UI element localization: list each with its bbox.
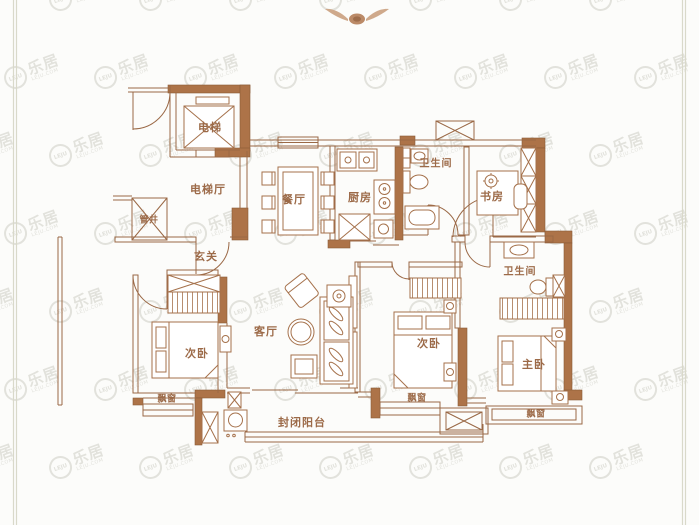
balcony-laundry-icon [202,392,247,443]
compass-icon [325,9,389,25]
room-label-kitchen: 厨房 [348,189,372,205]
bedroom-left-furniture-icon [152,275,231,378]
room-label-study: 书房 [480,188,504,204]
room-label-bay-window-middle: 飘窗 [407,391,426,404]
room-label-bay-window-right: 飘窗 [526,407,545,420]
room-label-bedroom-left: 次卧 [185,345,209,361]
page-border-lines [14,0,686,525]
floor-plan-drawing [0,0,699,525]
bedroom-middle-furniture-icon [394,278,461,388]
room-label-bathroom-2: 卫生间 [504,263,537,278]
room-label-elevator-hall: 电梯厅 [190,181,226,197]
room-label-elevator: 电梯 [198,119,222,135]
master-bedroom-furniture-icon [498,298,568,404]
room-label-bathroom-1: 卫生间 [420,155,453,170]
room-label-living: 客厅 [254,323,278,339]
room-label-entrance: 玄关 [194,248,218,264]
living-room-furniture-icon [284,273,357,388]
room-label-pipe-shaft: 管井 [139,213,158,226]
room-label-balcony: 封闭阳台 [278,414,326,430]
room-label-bay-window-left: 飘窗 [157,392,176,405]
room-label-bedroom-middle: 次卧 [417,335,441,351]
room-label-dining: 餐厅 [282,191,306,207]
room-label-master-bedroom: 主卧 [522,356,546,372]
